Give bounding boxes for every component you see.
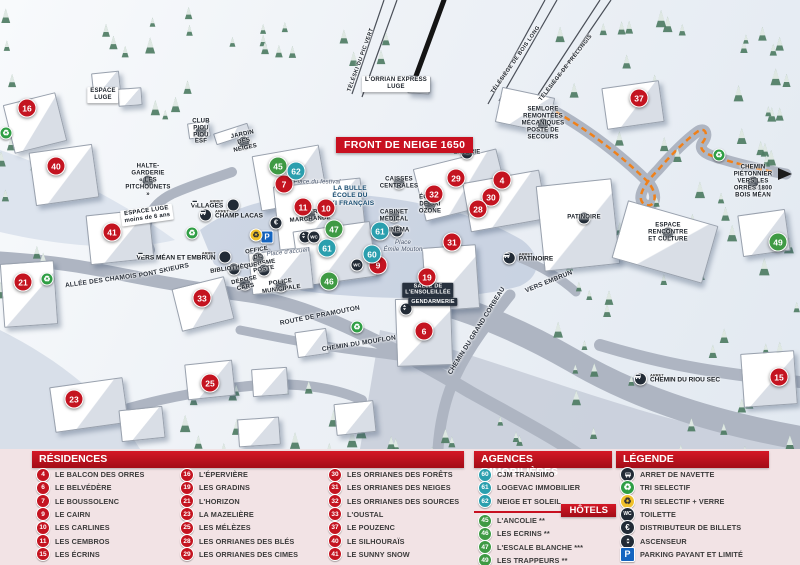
legend-item-label: TRI SELECTIF bbox=[640, 483, 690, 492]
map-marker-40[interactable]: 40 bbox=[47, 157, 66, 176]
legend-item: 29LES ORRIANES DES CIMES bbox=[180, 548, 298, 561]
legend-item-label: L'ESCALE BLANCHE *** bbox=[497, 543, 583, 552]
marker-number: 30 bbox=[486, 192, 495, 202]
bus-stop: ARRETPATINOIRE bbox=[503, 252, 553, 265]
building bbox=[237, 417, 281, 448]
legend-panel: RÉSIDENCES 4LE BALCON DES ORRES6LE BELVÉ… bbox=[0, 449, 800, 565]
legend-item: 61LOGEVAC IMMOBILIER bbox=[478, 481, 580, 494]
building bbox=[117, 87, 142, 107]
legend-item-label: LES CARLINES bbox=[55, 523, 110, 532]
marker-number: 61 bbox=[375, 226, 384, 236]
legend-item: 40LE SILHOURAÏS bbox=[328, 535, 405, 548]
map-label: JARDIN DES NEIGES bbox=[236, 134, 251, 149]
legend-item: 6LE BELVÉDÈRE bbox=[36, 481, 112, 494]
legend-item-label: PARKING PAYANT ET LIMITÉ bbox=[640, 550, 743, 559]
legend-item: ♻TRI SELECTIF bbox=[620, 481, 690, 494]
legend-item: 21L'HORIZON bbox=[180, 495, 240, 508]
legend-item-label: DISTRIBUTEUR DE BILLETS bbox=[640, 523, 741, 532]
bus-icon bbox=[199, 209, 212, 222]
map-marker-21[interactable]: 21 bbox=[14, 273, 33, 292]
map-marker-46[interactable]: 46 bbox=[320, 272, 339, 291]
legend-item: WCTOILETTE bbox=[620, 508, 676, 521]
legend-item: 15LES ÉCRINS bbox=[36, 548, 100, 561]
building bbox=[294, 328, 329, 358]
marker-number: 31 bbox=[447, 237, 456, 247]
map-canvas: FRONT DE NEIGE 1650 €P♻WCWC♻♻♻♻♻ARRETVIL… bbox=[0, 0, 800, 449]
legend-marker-number: 37 bbox=[328, 521, 342, 535]
legend-item-label: LE BOUSSOLENC bbox=[55, 497, 119, 506]
resort-map-page: FRONT DE NEIGE 1650 €P♻WCWC♻♻♻♻♻ARRETVIL… bbox=[0, 0, 800, 565]
legend-marker-number: 11 bbox=[36, 534, 50, 548]
legend-item: 9LE CAIRN bbox=[36, 508, 90, 521]
marker-number: 10 bbox=[321, 203, 330, 213]
marker-number: 47 bbox=[329, 224, 338, 234]
map-marker-15[interactable]: 15 bbox=[770, 368, 789, 387]
euro-icon: € bbox=[270, 217, 283, 230]
marker-number: 28 bbox=[473, 204, 482, 214]
legend-marker-number: 10 bbox=[36, 521, 50, 535]
map-marker-49[interactable]: 49 bbox=[769, 233, 788, 252]
map-marker-4[interactable]: 4 bbox=[493, 171, 512, 190]
legend-item-label: LES CEMBROS bbox=[55, 537, 110, 546]
legend-item-label: LES ORRIANES DES SOURCES bbox=[347, 497, 459, 506]
building bbox=[0, 260, 58, 328]
legend-item-label: LE SUNNY SNOW bbox=[347, 550, 410, 559]
legend-marker-number: 29 bbox=[180, 547, 194, 561]
legend-marker-number: 28 bbox=[180, 534, 194, 548]
marker-number: 25 bbox=[205, 378, 214, 388]
bus-stop-name: CHAMP LACAS bbox=[215, 214, 263, 221]
legend-marker-number: 32 bbox=[328, 494, 342, 508]
legend-marker-number: 40 bbox=[328, 534, 342, 548]
marker-number: 23 bbox=[69, 394, 78, 404]
legend-item-label: LES MÉLÈZES bbox=[199, 523, 251, 532]
map-label: CHEMIN PIÉTONNIER VERS LES ORRES 1800 BO… bbox=[747, 176, 760, 189]
legend-item: 32LES ORRIANES DES SOURCES bbox=[328, 495, 459, 508]
map-label: POLICE MUNICIPALE bbox=[274, 279, 289, 294]
legend-marker-number: 60 bbox=[478, 468, 492, 482]
map-label: Place Émile Mouton bbox=[383, 240, 422, 254]
marker-number: 41 bbox=[107, 227, 116, 237]
legend-item: 45L'ANCOLIE ** bbox=[478, 514, 545, 527]
legend-item-label: LES ORRIANES DES BLÉS bbox=[199, 537, 294, 546]
legend-marker-number: 45 bbox=[478, 514, 492, 528]
legend-item: 19LES GRADINS bbox=[180, 481, 250, 494]
legend-item-label: LES ORRIANES DES CIMES bbox=[199, 550, 298, 559]
map-marker-23[interactable]: 23 bbox=[65, 390, 84, 409]
legend-item-label: LA MAZELIÈRE bbox=[199, 510, 254, 519]
map-marker-28[interactable]: 28 bbox=[469, 200, 488, 219]
legend-item-label: ARRET DE NAVETTE bbox=[640, 470, 714, 479]
legend-marker-number: 62 bbox=[478, 494, 492, 508]
map-label: PATINOIRE bbox=[578, 212, 591, 225]
parking-icon: P bbox=[620, 547, 635, 562]
building bbox=[251, 367, 289, 397]
legend-item-label: LES ECRINS ** bbox=[497, 529, 550, 538]
legend-block-agences: AGENCES IMMOBILIÈRES 60CJM TRANSIMO61LOG… bbox=[474, 451, 612, 468]
legend-item: 16L'ÉPERVIÈRE bbox=[180, 468, 248, 481]
bus-stop-name: VERS MÉAN ET EMBRUN bbox=[136, 256, 215, 263]
legend-item-label: TRI SELECTIF + VERRE bbox=[640, 497, 725, 506]
marker-number: 21 bbox=[18, 277, 27, 287]
legend-item: 28LES ORRIANES DES BLÉS bbox=[180, 535, 294, 548]
legend-item: 41LE SUNNY SNOW bbox=[328, 548, 410, 561]
bus-stop-label: ARRETCHAMP LACAS bbox=[215, 210, 263, 221]
map-marker-61[interactable]: 61 bbox=[371, 222, 390, 241]
recycle-icon: ♻ bbox=[713, 149, 726, 162]
legend-item-label: NEIGE ET SOLEIL bbox=[497, 497, 561, 506]
legend-item-label: LES ÉCRINS bbox=[55, 550, 100, 559]
bus-stop-label: ARRETVERS MÉAN ET EMBRUN bbox=[136, 252, 215, 263]
bus-stop: ARRETVERS MÉAN ET EMBRUN bbox=[136, 251, 231, 264]
map-marker-62[interactable]: 62 bbox=[287, 162, 306, 181]
marker-number: 7 bbox=[282, 179, 287, 189]
map-label: GENDARMERIE bbox=[408, 298, 457, 306]
recycle-icon: ♻ bbox=[351, 321, 364, 334]
legend-item-label: LES ORRIANES DES FORÊTS bbox=[347, 470, 453, 479]
marker-number: 32 bbox=[429, 189, 438, 199]
bus-stop-name: PATINOIRE bbox=[519, 257, 553, 264]
legend-item-label: LE CAIRN bbox=[55, 510, 90, 519]
bus-icon bbox=[503, 252, 516, 265]
recycle-icon: ♻ bbox=[186, 227, 199, 240]
legend-item: 60CJM TRANSIMO bbox=[478, 468, 555, 481]
marker-number: 46 bbox=[324, 276, 333, 286]
recycle-icon: ♻ bbox=[0, 127, 13, 140]
bus-stop: ARRETCHEMIN DU RIOU SEC bbox=[634, 373, 720, 386]
recycle-verre-icon: ♻ bbox=[250, 229, 263, 242]
building bbox=[118, 406, 165, 442]
map-marker-29[interactable]: 29 bbox=[447, 169, 466, 188]
legend-item: 11LES CEMBROS bbox=[36, 535, 110, 548]
recycle-icon: ♻ bbox=[41, 273, 54, 286]
legend-block-residences: RÉSIDENCES 4LE BALCON DES ORRES6LE BELVÉ… bbox=[32, 451, 464, 468]
legend-marker-number: 21 bbox=[180, 494, 194, 508]
marker-number: 29 bbox=[451, 173, 460, 183]
legend-marker-number: 7 bbox=[36, 494, 50, 508]
marker-number: 4 bbox=[500, 175, 505, 185]
legend-item: 33L'OUSTAL bbox=[328, 508, 383, 521]
legend-marker-number: 19 bbox=[180, 481, 194, 495]
marker-number: 60 bbox=[367, 249, 376, 259]
legend-item: 31LES ORRIANES DES NEIGES bbox=[328, 481, 451, 494]
legend-item-label: L'ÉPERVIÈRE bbox=[199, 470, 248, 479]
legend-marker-number: 47 bbox=[478, 540, 492, 554]
legend-item-label: ASCENSEUR bbox=[640, 537, 687, 546]
legend-header-legende: LÉGENDE bbox=[616, 451, 769, 468]
legend-block-legende: LÉGENDE ARRET DE NAVETTE♻TRI SELECTIF♻TR… bbox=[616, 451, 769, 468]
map-label: CAISSES CENTRALES bbox=[393, 177, 406, 190]
map-marker-60[interactable]: 60 bbox=[363, 245, 382, 264]
legend-item: 62NEIGE ET SOLEIL bbox=[478, 495, 561, 508]
legend-marker-number: 23 bbox=[180, 507, 194, 521]
legend-item-label: LOGEVAC IMMOBILIER bbox=[497, 483, 580, 492]
bus-icon bbox=[219, 251, 232, 264]
legend-item-label: LE POUZENC bbox=[347, 523, 395, 532]
marker-number: 6 bbox=[422, 326, 427, 336]
marker-number: 49 bbox=[773, 237, 782, 247]
map-marker-16[interactable]: 16 bbox=[18, 99, 37, 118]
marker-number: 19 bbox=[422, 272, 431, 282]
map-marker-19[interactable]: 19 bbox=[418, 268, 437, 287]
legend-item-label: L'OUSTAL bbox=[347, 510, 383, 519]
map-marker-10[interactable]: 10 bbox=[317, 199, 336, 218]
map-marker-6[interactable]: 6 bbox=[415, 322, 434, 341]
legend-marker-number: 31 bbox=[328, 481, 342, 495]
legend-marker-number: 33 bbox=[328, 507, 342, 521]
legend-marker-number: 61 bbox=[478, 481, 492, 495]
legend-item-label: LES ORRIANES DES NEIGES bbox=[347, 483, 451, 492]
map-marker-41[interactable]: 41 bbox=[103, 223, 122, 242]
legend-header-agences: AGENCES IMMOBILIÈRES bbox=[474, 451, 612, 468]
marker-number: 11 bbox=[299, 202, 308, 212]
legend-item: 10LES CARLINES bbox=[36, 521, 110, 534]
legend-item-label: LE BALCON DES ORRES bbox=[55, 470, 144, 479]
legend-header-hotels: HÔTELS bbox=[561, 504, 616, 517]
legend-item-label: CJM TRANSIMO bbox=[497, 470, 555, 479]
legend-marker-number: 49 bbox=[478, 553, 492, 565]
legend-marker-number: 30 bbox=[328, 468, 342, 482]
map-marker-11[interactable]: 11 bbox=[294, 198, 313, 217]
legend-item: ARRET DE NAVETTE bbox=[620, 468, 714, 481]
legend-marker-number: 46 bbox=[478, 527, 492, 541]
legend-item: 7LE BOUSSOLENC bbox=[36, 495, 119, 508]
legend-item-label: LE BELVÉDÈRE bbox=[55, 483, 112, 492]
map-marker-47[interactable]: 47 bbox=[325, 220, 344, 239]
legend-item-label: TOILETTE bbox=[640, 510, 676, 519]
legend-item-label: L'HORIZON bbox=[199, 497, 240, 506]
legend-item: €DISTRIBUTEUR DE BILLETS bbox=[620, 521, 741, 534]
legend-item: 47L'ESCALE BLANCHE *** bbox=[478, 541, 583, 554]
map-label: HALTE-GARDERIE « LES PITCHOUNETS » bbox=[142, 175, 155, 188]
legend-marker-number: 25 bbox=[180, 521, 194, 535]
legend-marker-number: 6 bbox=[36, 481, 50, 495]
legend-marker-number: 9 bbox=[36, 507, 50, 521]
legend-header-residences: RÉSIDENCES bbox=[32, 451, 464, 468]
marker-number: 62 bbox=[291, 166, 300, 176]
legend-item-label: LES GRADINS bbox=[199, 483, 250, 492]
legend-item: PPARKING PAYANT ET LIMITÉ bbox=[620, 548, 743, 561]
map-marker-61[interactable]: 61 bbox=[318, 239, 337, 258]
marker-number: 37 bbox=[634, 93, 643, 103]
legend-marker-number: 4 bbox=[36, 468, 50, 482]
front-de-neige-banner: FRONT DE NEIGE 1650 bbox=[336, 137, 473, 153]
bus-stop-label: ARRETCHEMIN DU RIOU SEC bbox=[650, 374, 720, 385]
legend-item-label: LE SILHOURAÏS bbox=[347, 537, 405, 546]
map-label: CINÉMA bbox=[391, 225, 404, 238]
legend-item: 23LA MAZELIÈRE bbox=[180, 508, 254, 521]
map-marker-31[interactable]: 31 bbox=[443, 233, 462, 252]
legend-item: ♻TRI SELECTIF + VERRE bbox=[620, 495, 725, 508]
marker-number: 16 bbox=[22, 103, 31, 113]
legend-item: 4LE BALCON DES ORRES bbox=[36, 468, 144, 481]
map-label: ESPACE LUGE bbox=[87, 87, 118, 103]
map-label: L'ORRIAN EXPRESS LUGE bbox=[362, 76, 430, 92]
map-label: ESPACE RENCONTRE ET CULTURE bbox=[662, 227, 675, 240]
map-marker-37[interactable]: 37 bbox=[630, 89, 649, 108]
wc-icon: WC bbox=[351, 259, 364, 272]
legend-item-label: LES TRAPPEURS ** bbox=[497, 556, 568, 565]
legend-item: 25LES MÉLÈZES bbox=[180, 521, 251, 534]
map-marker-25[interactable]: 25 bbox=[201, 374, 220, 393]
marker-number: 45 bbox=[273, 161, 282, 171]
building bbox=[29, 144, 100, 206]
parking-icon: P bbox=[261, 231, 274, 244]
legend-item: 49LES TRAPPEURS ** bbox=[478, 554, 568, 565]
marker-number: 40 bbox=[51, 161, 60, 171]
legend-marker-number: 16 bbox=[180, 468, 194, 482]
legend-item: ASCENSEUR bbox=[620, 535, 687, 548]
marker-number: 15 bbox=[774, 372, 783, 382]
map-label: DÉPOSE CARS bbox=[237, 276, 252, 291]
map-marker-32[interactable]: 32 bbox=[425, 185, 444, 204]
bus-stop-label: ARRETPATINOIRE bbox=[519, 253, 553, 264]
map-label: CLUB PIOU PIOU ESF bbox=[195, 126, 208, 139]
marker-number: 33 bbox=[197, 293, 206, 303]
bus-icon bbox=[634, 373, 647, 386]
building bbox=[333, 400, 376, 436]
map-marker-45[interactable]: 45 bbox=[269, 157, 288, 176]
bus-stop-name: CHEMIN DU RIOU SEC bbox=[650, 378, 720, 385]
map-label: SEMLORE REMONTÉES MÉCANIQUES POSTE DE SE… bbox=[537, 118, 550, 131]
legend-marker-number: 41 bbox=[328, 547, 342, 561]
legend-item: 46LES ECRINS ** bbox=[478, 527, 550, 540]
legend-item-label: L'ANCOLIE ** bbox=[497, 516, 545, 525]
euro-icon: € bbox=[620, 520, 635, 535]
bus-stop: ARRETCHAMP LACAS bbox=[199, 209, 263, 222]
legend-item: 37LE POUZENC bbox=[328, 521, 395, 534]
legend-marker-number: 15 bbox=[36, 547, 50, 561]
map-label: CABINET MÉDICAL bbox=[388, 210, 401, 223]
marker-number: 61 bbox=[322, 243, 331, 253]
map-marker-33[interactable]: 33 bbox=[193, 289, 212, 308]
legend-item: 30LES ORRIANES DES FORÊTS bbox=[328, 468, 453, 481]
